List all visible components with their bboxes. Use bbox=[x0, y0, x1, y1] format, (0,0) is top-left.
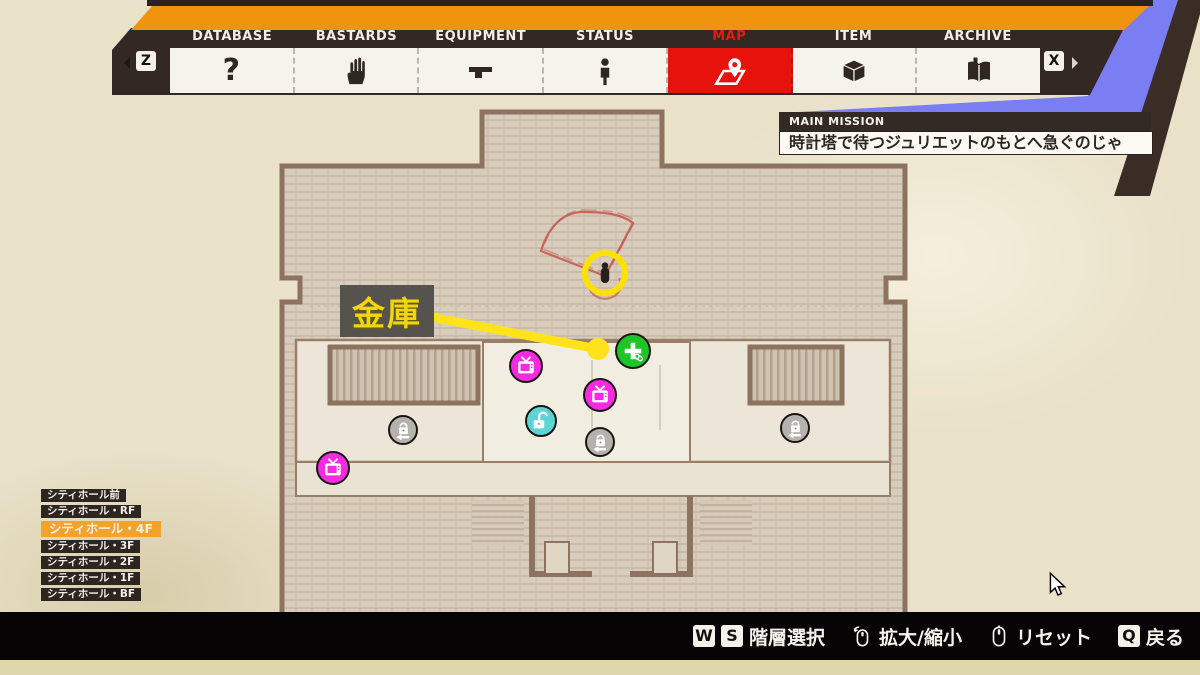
tab-icon-row: ? bbox=[170, 48, 1040, 93]
hint-zoom-label: 拡大/縮小 bbox=[879, 623, 962, 650]
hint-reset-label: リセット bbox=[1016, 623, 1092, 650]
locked-door-icon bbox=[388, 415, 418, 445]
mouse-wheel-icon bbox=[851, 624, 873, 649]
tv-collectible-icon bbox=[316, 451, 350, 485]
next-tab-arrow-icon[interactable] bbox=[1072, 57, 1084, 69]
hint-floor-select-label: 階層選択 bbox=[749, 623, 825, 650]
floor-list: シティホール前 シティホール・RF シティホール・4F シティホール・3F シテ… bbox=[41, 489, 161, 604]
medkit-icon bbox=[615, 333, 651, 369]
hint-floor-select: W S 階層選択 bbox=[693, 623, 825, 650]
mouse-cursor bbox=[1048, 572, 1066, 597]
tab-equipment[interactable] bbox=[419, 48, 544, 93]
bottom-bar: W S 階層選択 拡大/縮小 リセット Q 戻る bbox=[0, 612, 1200, 660]
key-w: W bbox=[693, 625, 715, 647]
tab-label-bastards: BASTARDS bbox=[294, 29, 418, 47]
floor-item-4f[interactable]: シティホール・4F bbox=[41, 521, 161, 537]
unlocked-door-icon bbox=[525, 405, 557, 437]
tab-item[interactable] bbox=[793, 48, 918, 93]
locked-door-icon bbox=[780, 413, 810, 443]
tab-label-equipment: EQUIPMENT bbox=[419, 29, 543, 47]
tv-collectible-icon bbox=[583, 378, 617, 412]
locked-door-icon bbox=[585, 427, 615, 457]
tab-label-item: ITEM bbox=[791, 29, 915, 47]
book-icon bbox=[962, 55, 996, 87]
floor-item-bf[interactable]: シティホール・BF bbox=[41, 588, 141, 601]
hint-reset: リセット bbox=[988, 623, 1092, 650]
header-top-edge bbox=[147, 0, 1153, 6]
pistol-icon bbox=[464, 55, 496, 87]
tab-archive[interactable] bbox=[917, 48, 1040, 93]
key-z[interactable]: Z bbox=[136, 51, 156, 71]
player-marker bbox=[582, 250, 628, 296]
tab-database[interactable]: ? bbox=[170, 48, 295, 93]
bottom-strip bbox=[0, 660, 1200, 675]
hint-zoom: 拡大/縮小 bbox=[851, 623, 962, 650]
prev-tab-arrow-icon[interactable] bbox=[118, 57, 130, 69]
key-s: S bbox=[721, 625, 743, 647]
tab-status[interactable] bbox=[544, 48, 669, 93]
tab-label-status: STATUS bbox=[543, 29, 667, 47]
mouse-middle-icon bbox=[988, 624, 1010, 649]
person-icon bbox=[590, 55, 620, 87]
tab-label-map: MAP bbox=[667, 29, 791, 47]
floor-item-1f[interactable]: シティホール・1F bbox=[41, 572, 140, 585]
tab-bastards[interactable] bbox=[295, 48, 420, 93]
hand-icon bbox=[341, 56, 371, 86]
tab-map[interactable] bbox=[668, 48, 793, 93]
floor-item-2f[interactable]: シティホール・2F bbox=[41, 556, 140, 569]
tab-label-database: DATABASE bbox=[170, 29, 294, 47]
mission-category: MAIN MISSION bbox=[779, 112, 1151, 131]
floor-item-mae[interactable]: シティホール前 bbox=[41, 489, 126, 502]
hint-back: Q 戻る bbox=[1118, 623, 1184, 650]
mission-text: 時計塔で待つジュリエットのもとへ急ぐのじゃ bbox=[779, 131, 1153, 155]
tab-label-row: DATABASE BASTARDS EQUIPMENT STATUS MAP I… bbox=[170, 29, 1040, 47]
tv-collectible-icon bbox=[509, 349, 543, 383]
tab-label-archive: ARCHIVE bbox=[916, 29, 1040, 47]
box-icon bbox=[838, 55, 870, 87]
floor-item-rf[interactable]: シティホール・RF bbox=[41, 505, 141, 518]
hint-back-label: 戻る bbox=[1146, 623, 1184, 650]
floor-item-3f[interactable]: シティホール・3F bbox=[41, 540, 140, 553]
map-pin-icon bbox=[712, 55, 748, 87]
question-icon: ? bbox=[223, 56, 240, 86]
key-x[interactable]: X bbox=[1044, 51, 1064, 71]
key-q: Q bbox=[1118, 625, 1140, 647]
